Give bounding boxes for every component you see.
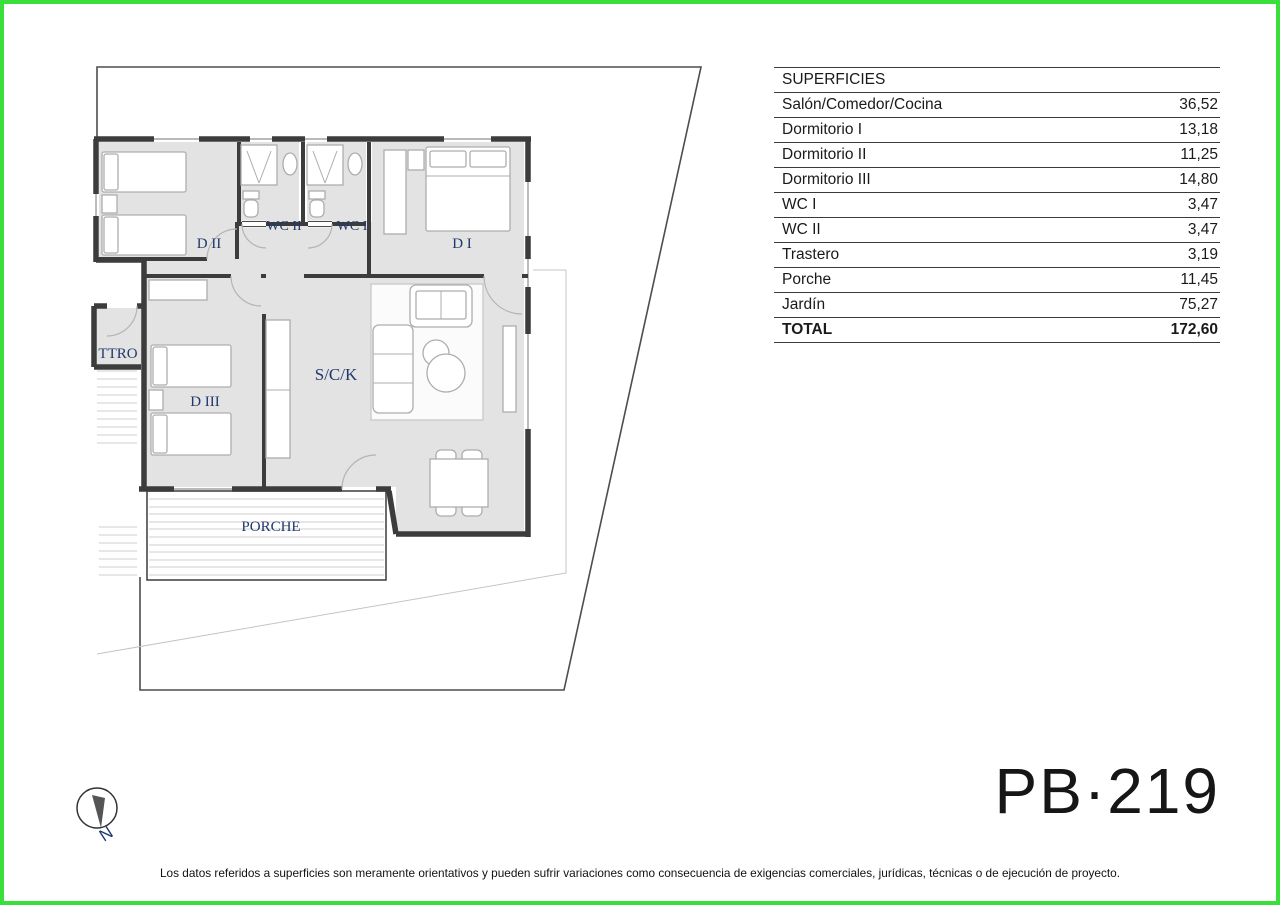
table-row: WC I 3,47: [774, 192, 1220, 217]
room-label-wc2: WC II: [266, 219, 302, 234]
table-row: Dormitorio I 13,18: [774, 117, 1220, 142]
table-row: Dormitorio III 14,80: [774, 167, 1220, 192]
side-steps: [97, 371, 137, 575]
porch-deck: [147, 491, 386, 580]
room-label-d1: D I: [452, 236, 472, 252]
table-row: Dormitorio II 11,25: [774, 142, 1220, 167]
room-label-d2: D II: [197, 236, 222, 252]
compass-needle-icon: [92, 795, 105, 828]
room-label-wc1: WC I: [337, 219, 368, 234]
table-title: SUPERFICIES: [782, 68, 885, 92]
room-label-d3: D III: [190, 394, 220, 410]
surfaces-table: SUPERFICIES Salón/Comedor/Cocina 36,52 D…: [774, 67, 1220, 343]
table-row: Salón/Comedor/Cocina 36,52: [774, 92, 1220, 117]
disclaimer-text: Los datos referidos a superficies son me…: [4, 866, 1276, 880]
room-label-porche: PORCHE: [241, 519, 300, 535]
room-label-sck: S/C/K: [315, 365, 358, 384]
plan-sheet: D II WC II WC I D I TTRO D III S/C/K POR…: [0, 0, 1280, 905]
plan-code: PB·219: [995, 754, 1220, 828]
table-row: WC II 3,47: [774, 217, 1220, 242]
table-row: Porche 11,45: [774, 267, 1220, 292]
room-label-ttro: TTRO: [98, 346, 137, 362]
surfaces-table-header: SUPERFICIES: [774, 67, 1220, 92]
table-row: Trastero 3,19: [774, 242, 1220, 267]
north-compass: N: [77, 788, 117, 845]
table-row: Jardín 75,27: [774, 292, 1220, 317]
compass-north-letter: N: [96, 823, 117, 846]
table-total-row: TOTAL 172,60: [774, 317, 1220, 343]
